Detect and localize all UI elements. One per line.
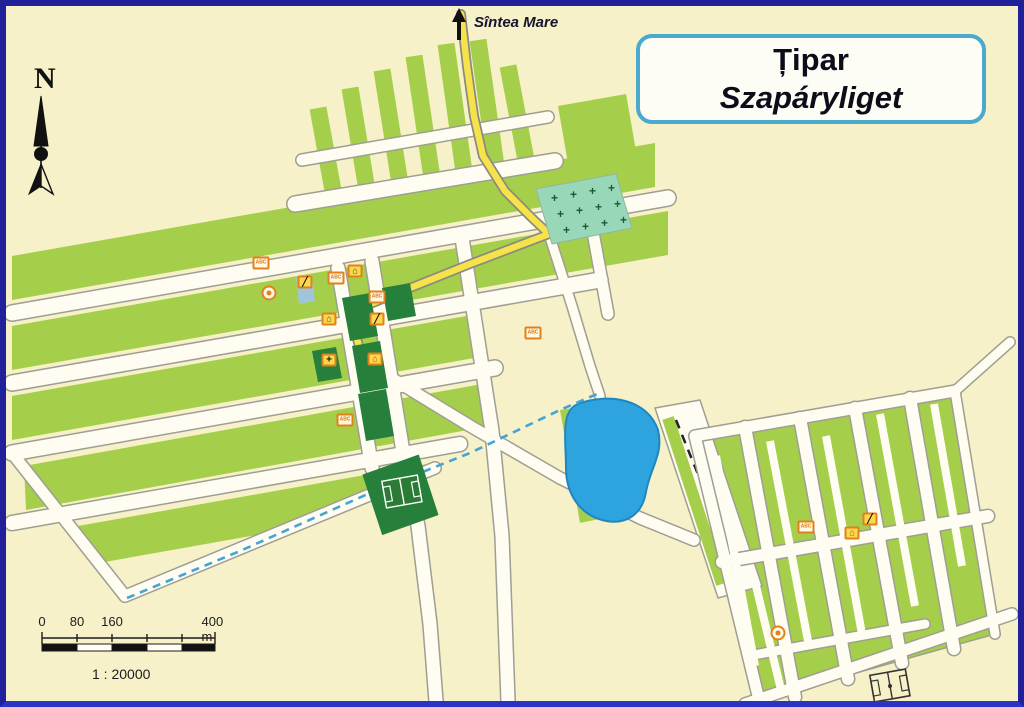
map-title-romanian: Țipar (773, 42, 849, 78)
grave-cross-icon: + (582, 220, 589, 234)
lake (565, 399, 659, 522)
north-label: N (34, 62, 56, 96)
grave-cross-icon: + (557, 207, 564, 221)
scale-tick-label: 160 (101, 614, 123, 629)
north-arrow (29, 96, 53, 194)
shop-abc-poi-icon: ABC (798, 521, 815, 534)
shop-abc-poi-icon: ABC (337, 414, 354, 427)
football-field-outline-icon (870, 669, 910, 701)
church-poi-icon: + (322, 354, 337, 367)
map-title-hungarian: Szapáryliget (720, 80, 903, 116)
grave-cross-icon: + (551, 191, 558, 205)
pen-poi-icon: ╱ (370, 313, 385, 326)
poi-dot (267, 291, 272, 296)
post-circle-poi-icon (771, 626, 786, 641)
north-east-plot (558, 94, 638, 175)
scale-tick-label: 80 (70, 614, 84, 629)
poi-dot (776, 631, 781, 636)
grave-cross-icon: + (595, 200, 602, 214)
post-circle-poi-icon (262, 286, 277, 301)
grave-cross-icon: + (570, 188, 577, 202)
shop-abc-poi-icon: ABC (253, 257, 270, 270)
building-poi-icon: ⌂ (322, 313, 337, 326)
grave-cross-icon: + (620, 213, 627, 227)
scale-tick-label: 0 (38, 614, 45, 629)
building-poi-icon: ⌂ (348, 265, 363, 278)
grave-cross-icon: + (563, 223, 570, 237)
map-frame: ++++++++++++ (0, 0, 1024, 707)
building-red-poi-icon: ⌂ (368, 353, 383, 366)
scale-ratio-label: 1 : 20000 (92, 666, 150, 682)
shop-abc-poi-icon: ABC (328, 272, 345, 285)
grave-cross-icon: + (614, 197, 621, 211)
grave-cross-icon: + (601, 216, 608, 230)
building-red-poi-icon: ⌂ (845, 527, 860, 540)
map-title-card: Țipar Szapáryliget (636, 34, 986, 124)
scale-bar-labels: 0 80 160 400 m 1 : 20000 (42, 614, 242, 684)
shop-abc-poi-icon: ABC (369, 291, 386, 304)
shop-abc-poi-icon: ABC (525, 327, 542, 340)
grave-cross-icon: + (608, 181, 615, 195)
pen-poi-icon: ╱ (298, 276, 313, 289)
grave-cross-icon: + (589, 184, 596, 198)
destination-road-label: Sîntea Mare (474, 14, 558, 31)
scale-tick-label: 400 m (202, 614, 229, 644)
pen-poi-icon: ╱ (863, 513, 878, 526)
grave-cross-icon: + (576, 204, 583, 218)
